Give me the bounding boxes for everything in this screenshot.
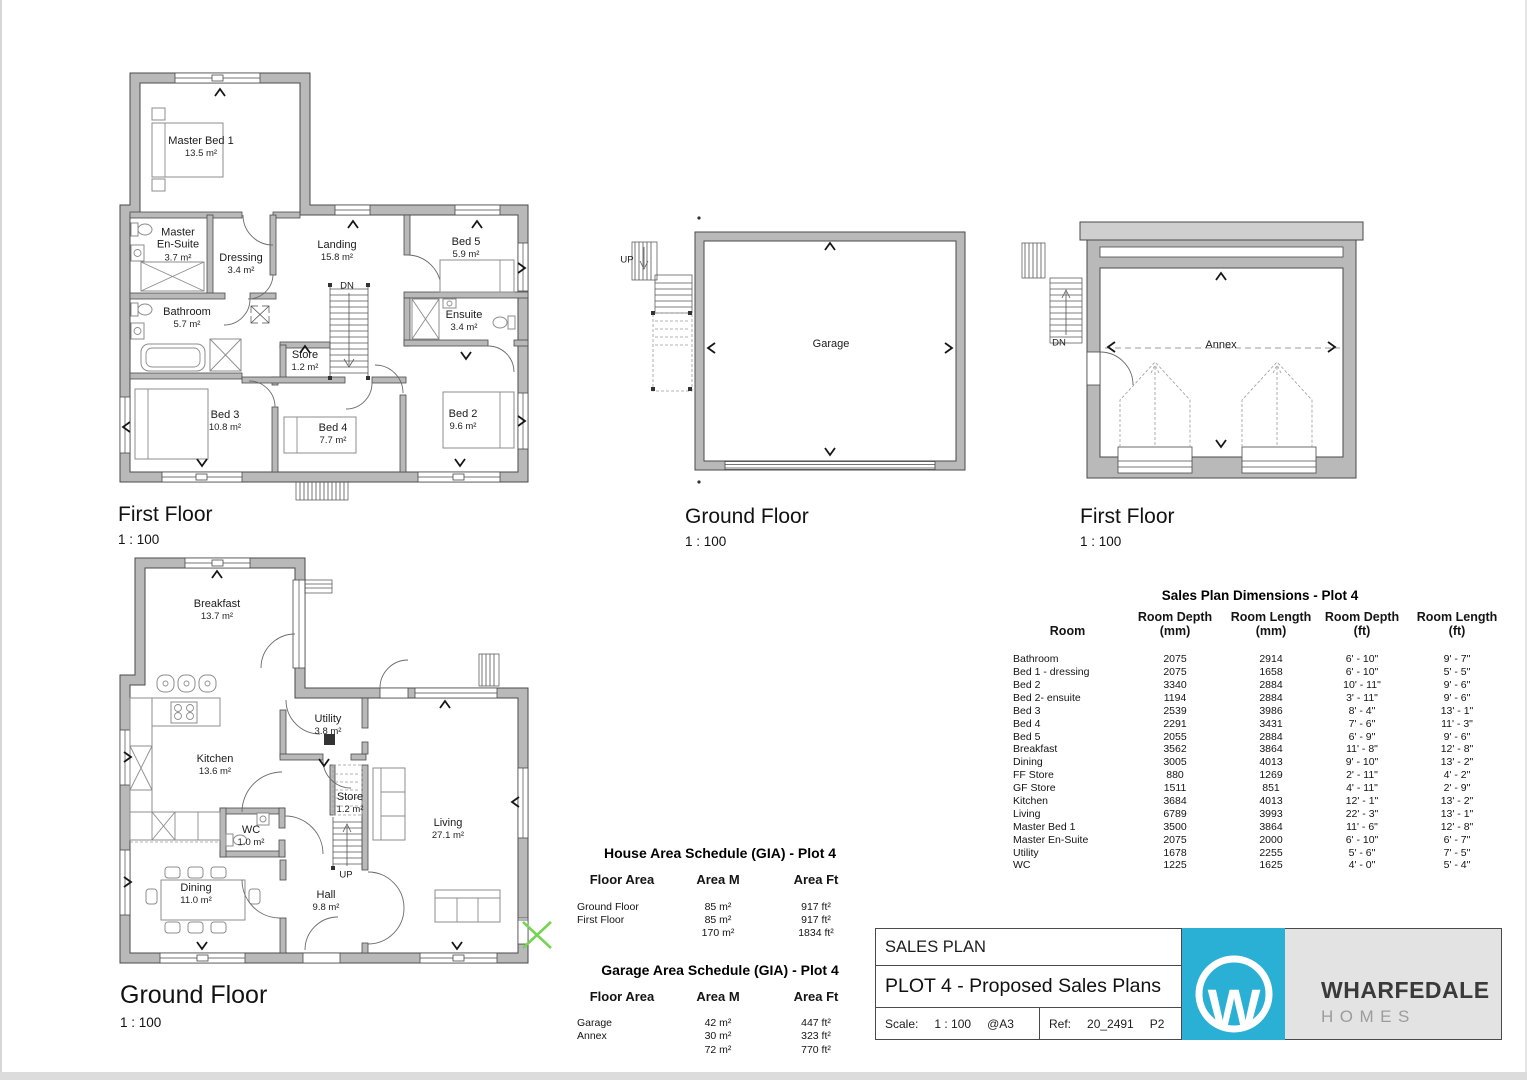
cell-length-ft: 13' - 1" xyxy=(1407,705,1507,717)
dimensions-table-header: Room Room Depth (mm) Room Length (mm) Ro… xyxy=(1010,610,1510,639)
house-ground-floor-title: Ground Floor 1 : 100 xyxy=(120,981,267,1030)
cell-length-mm: 1658 xyxy=(1225,666,1317,678)
revision: P2 xyxy=(1150,1017,1165,1031)
plan-scale: 1 : 100 xyxy=(685,534,809,549)
cell-depth-mm: 2075 xyxy=(1125,653,1225,665)
room-label-living: Living 27.1 m² xyxy=(432,817,464,841)
house-area-schedule-header: Floor Area Area M Area Ft xyxy=(555,872,885,887)
stair-label-dn: DN xyxy=(340,281,354,292)
cell-floor: First Floor xyxy=(555,914,689,926)
plan-title: First Floor xyxy=(118,503,213,527)
garage-walls xyxy=(695,232,965,470)
garage-door-opening xyxy=(725,462,935,470)
cell-depth-mm: 880 xyxy=(1125,769,1225,781)
cell-depth-mm: 2539 xyxy=(1125,705,1225,717)
cell-room: Bed 5 xyxy=(1010,731,1125,743)
garage-area-schedule-header: Floor Area Area M Area Ft xyxy=(555,989,885,1004)
header-depth-ft: Room Depth (ft) xyxy=(1317,610,1407,639)
room-label-dining: Dining 11.0 m² xyxy=(180,882,212,906)
dimensions-table-body: Bathroom 2075 2914 6' - 10" 9' - 7" Bed … xyxy=(1010,653,1510,872)
room-label-bed4: Bed 4 7.7 m² xyxy=(319,422,348,446)
annex-dormer-outlines xyxy=(1120,362,1312,447)
dimension-row: WC 1225 1625 4' - 0" 5' - 4" xyxy=(1010,859,1510,872)
brand-sub: HOMES xyxy=(1321,1008,1501,1025)
cell-area-ft: 1834 ft² xyxy=(747,927,885,939)
cell-length-mm: 3986 xyxy=(1225,705,1317,717)
area-row: Ground Floor 85 m² 917 ft² xyxy=(555,900,885,913)
header-floor-area: Floor Area xyxy=(555,872,689,887)
plan-scale: 1 : 100 xyxy=(120,1015,267,1030)
cell-area-m: 85 m² xyxy=(689,914,747,926)
cell-depth-mm: 1194 xyxy=(1125,692,1225,704)
annex-title: First Floor 1 : 100 xyxy=(1080,505,1175,549)
stair-label-up: UP xyxy=(620,255,633,266)
cell-length-ft: 13' - 2" xyxy=(1407,756,1507,768)
brand-name: WHARFEDALE xyxy=(1321,979,1501,1002)
cell-depth-ft: 5' - 6" xyxy=(1317,847,1407,859)
scale-value: 1 : 100 xyxy=(934,1017,971,1031)
cell-depth-ft: 6' - 10" xyxy=(1317,653,1407,665)
cell-floor: Garage xyxy=(555,1017,689,1029)
cell-length-mm: 1625 xyxy=(1225,859,1317,871)
cell-depth-ft: 8' - 4" xyxy=(1317,705,1407,717)
plan-scale: 1 : 100 xyxy=(1080,534,1175,549)
cell-room: WC xyxy=(1010,859,1125,871)
header-area-m: Area M xyxy=(689,989,747,1004)
room-label-ff-store: Store 1.2 m² xyxy=(292,349,319,373)
wharfedale-brand-box: WHARFEDALE HOMES xyxy=(1285,928,1502,1040)
furniture xyxy=(131,108,515,459)
cell-depth-mm: 6789 xyxy=(1125,808,1225,820)
ref-label: Ref: xyxy=(1049,1017,1071,1031)
drawing-title: PLOT 4 - Proposed Sales Plans xyxy=(876,966,1181,1008)
plan-title: Ground Floor xyxy=(120,981,267,1010)
header-length-ft: Room Length (ft) xyxy=(1407,610,1507,639)
cell-room: Master Bed 1 xyxy=(1010,821,1125,833)
cell-depth-ft: 11' - 8" xyxy=(1317,743,1407,755)
cell-depth-ft: 10' - 11" xyxy=(1317,679,1407,691)
drawing-sheet: Master Bed 1 13.5 m² Master En-Suite 3.7… xyxy=(0,0,1527,1080)
dimension-row: Utility 1678 2255 5' - 6" 7' - 5" xyxy=(1010,846,1510,859)
cell-length-ft: 12' - 8" xyxy=(1407,821,1507,833)
title-block-meta: Scale: 1 : 100 @A3 Ref: 20_2491 P2 xyxy=(876,1008,1181,1039)
cell-length-ft: 13' - 1" xyxy=(1407,808,1507,820)
dimension-row: Master Bed 1 3500 3864 11' - 6" 12' - 8" xyxy=(1010,820,1510,833)
cell-area-m: 170 m² xyxy=(689,927,747,939)
room-label-utility: Utility 3.8 m² xyxy=(315,713,342,737)
cell-length-mm: 4013 xyxy=(1225,795,1317,807)
cell-length-mm: 3993 xyxy=(1225,808,1317,820)
wharfedale-logo-icon: W xyxy=(1182,928,1285,1040)
room-label-master-bed-1: Master Bed 1 13.5 m² xyxy=(168,135,233,159)
cell-area-ft: 447 ft² xyxy=(747,1017,885,1029)
room-label-gf-store: Store 1.2 m² xyxy=(337,791,364,815)
cell-depth-mm: 3684 xyxy=(1125,795,1225,807)
cell-depth-ft: 6' - 10" xyxy=(1317,666,1407,678)
room-label-bed3: Bed 3 10.8 m² xyxy=(209,409,241,433)
cell-length-mm: 3864 xyxy=(1225,743,1317,755)
cell-length-ft: 2' - 9" xyxy=(1407,782,1507,794)
cell-length-ft: 9' - 7" xyxy=(1407,653,1507,665)
cell-area-ft: 770 ft² xyxy=(747,1044,885,1056)
garage-title: Ground Floor 1 : 100 xyxy=(685,505,809,549)
stairs-ground-floor xyxy=(331,817,362,870)
header-room: Room xyxy=(1010,624,1125,638)
header-area-ft: Area Ft xyxy=(747,872,885,887)
cell-room: GF Store xyxy=(1010,782,1125,794)
cell-area-ft: 917 ft² xyxy=(747,914,885,926)
direction-cross xyxy=(251,306,269,323)
cell-length-mm: 3431 xyxy=(1225,718,1317,730)
cell-length-ft: 4' - 2" xyxy=(1407,769,1507,781)
cell-depth-mm: 2291 xyxy=(1125,718,1225,730)
sheet-bottom-edge xyxy=(0,1072,1527,1080)
cell-length-mm: 2884 xyxy=(1225,679,1317,691)
cell-length-mm: 2884 xyxy=(1225,731,1317,743)
dimension-row: Breakfast 3562 3864 11' - 8" 12' - 8" xyxy=(1010,743,1510,756)
dimension-row: FF Store 880 1269 2' - 11" 4' - 2" xyxy=(1010,769,1510,782)
annex-door xyxy=(1087,352,1133,385)
cell-depth-mm: 1678 xyxy=(1125,847,1225,859)
cell-floor: Ground Floor xyxy=(555,901,689,913)
house-area-schedule-title: House Area Schedule (GIA) - Plot 4 xyxy=(555,845,885,861)
cell-depth-ft: 6' - 9" xyxy=(1317,731,1407,743)
cell-length-ft: 9' - 6" xyxy=(1407,692,1507,704)
cell-depth-ft: 7' - 6" xyxy=(1317,718,1407,730)
header-area-m: Area M xyxy=(689,872,747,887)
stairs-first-floor xyxy=(328,283,370,380)
cell-length-ft: 9' - 6" xyxy=(1407,731,1507,743)
house-first-floor-title: First Floor 1 : 100 xyxy=(118,503,213,547)
cell-length-mm: 3864 xyxy=(1225,821,1317,833)
dimension-row: Kitchen 3684 4013 12' - 1" 13' - 2" xyxy=(1010,795,1510,808)
cell-room: FF Store xyxy=(1010,769,1125,781)
cell-floor: Annex xyxy=(555,1030,689,1042)
scale-cell: Scale: 1 : 100 @A3 xyxy=(876,1008,1040,1039)
ref-value: 20_2491 xyxy=(1087,1017,1134,1031)
annex-roof-edge xyxy=(1080,222,1363,240)
cell-room: Bathroom xyxy=(1010,653,1125,665)
cell-depth-mm: 3340 xyxy=(1125,679,1225,691)
dimension-row: Master En-Suite 2075 2000 6' - 10" 6' - … xyxy=(1010,833,1510,846)
stair-label-up: UP xyxy=(339,870,352,881)
paper-size: @A3 xyxy=(987,1017,1014,1031)
house-first-floor-plan: Master Bed 1 13.5 m² Master En-Suite 3.7… xyxy=(110,55,560,515)
cell-depth-ft: 4' - 0" xyxy=(1317,859,1407,871)
cell-length-mm: 851 xyxy=(1225,782,1317,794)
dimension-row: Bed 3 2539 3986 8' - 4" 13' - 1" xyxy=(1010,704,1510,717)
room-label-kitchen: Kitchen 13.6 m² xyxy=(197,753,234,777)
area-schedules: House Area Schedule (GIA) - Plot 4 Floor… xyxy=(555,845,885,1056)
cell-length-mm: 2914 xyxy=(1225,653,1317,665)
cell-area-m: 30 m² xyxy=(689,1030,747,1042)
cell-room: Bed 2 xyxy=(1010,679,1125,691)
house-ground-floor-drawing xyxy=(105,550,565,980)
porch-steps xyxy=(296,482,348,500)
cell-depth-ft: 6' - 10" xyxy=(1317,834,1407,846)
title-block-text: SALES PLAN PLOT 4 - Proposed Sales Plans… xyxy=(875,928,1182,1040)
garage-drawing xyxy=(615,205,995,500)
area-row: First Floor 85 m² 917 ft² xyxy=(555,913,885,926)
cell-room: Bed 4 xyxy=(1010,718,1125,730)
cell-depth-ft: 22' - 3" xyxy=(1317,808,1407,820)
cell-length-ft: 6' - 7" xyxy=(1407,834,1507,846)
dimensions-table: Sales Plan Dimensions - Plot 4 Room Room… xyxy=(1010,588,1510,872)
room-label-bathroom: Bathroom 5.7 m² xyxy=(163,306,211,330)
dimension-row: Living 6789 3993 22' - 3" 13' - 1" xyxy=(1010,807,1510,820)
cell-depth-ft: 9' - 10" xyxy=(1317,756,1407,768)
external-steps xyxy=(305,580,499,686)
cell-length-mm: 2255 xyxy=(1225,847,1317,859)
cell-depth-mm: 1511 xyxy=(1125,782,1225,794)
cell-depth-mm: 2075 xyxy=(1125,666,1225,678)
dimension-row: GF Store 1511 851 4' - 11" 2' - 9" xyxy=(1010,782,1510,795)
cell-depth-mm: 2055 xyxy=(1125,731,1225,743)
plan-title: First Floor xyxy=(1080,505,1175,529)
header-depth-mm: Room Depth (mm) xyxy=(1125,610,1225,639)
cell-depth-ft: 11' - 6" xyxy=(1317,821,1407,833)
cell-length-mm: 2884 xyxy=(1225,692,1317,704)
dimension-row: Bed 2- ensuite 1194 2884 3' - 11" 9' - 6… xyxy=(1010,691,1510,704)
doc-type: SALES PLAN xyxy=(876,929,1181,966)
room-label-ensuite: Ensuite 3.4 m² xyxy=(446,309,483,333)
cell-room: Master En-Suite xyxy=(1010,834,1125,846)
cell-length-mm: 4013 xyxy=(1225,756,1317,768)
cell-length-ft: 5' - 5" xyxy=(1407,666,1507,678)
ref-cell: Ref: 20_2491 P2 xyxy=(1040,1008,1180,1039)
cell-area-m: 85 m² xyxy=(689,901,747,913)
cell-length-mm: 1269 xyxy=(1225,769,1317,781)
cell-depth-mm: 1225 xyxy=(1125,859,1225,871)
room-label-dressing: Dressing 3.4 m² xyxy=(219,252,262,276)
cell-depth-ft: 12' - 1" xyxy=(1317,795,1407,807)
plan-scale: 1 : 100 xyxy=(118,532,213,547)
cell-room: Utility xyxy=(1010,847,1125,859)
dimension-row: Bed 4 2291 3431 7' - 6" 11' - 3" xyxy=(1010,717,1510,730)
room-label-wc: WC 1.0 m² xyxy=(238,824,265,848)
cell-room: Breakfast xyxy=(1010,743,1125,755)
room-label-bed2: Bed 2 9.6 m² xyxy=(449,408,478,432)
green-cross-marker xyxy=(518,920,551,948)
logo-letter: W xyxy=(1208,977,1261,1040)
garage-external-stairs xyxy=(632,242,692,391)
header-floor-area: Floor Area xyxy=(555,989,689,1004)
cell-length-mm: 2000 xyxy=(1225,834,1317,846)
cell-depth-mm: 3562 xyxy=(1125,743,1225,755)
cell-length-ft: 13' - 2" xyxy=(1407,795,1507,807)
cell-length-ft: 12' - 8" xyxy=(1407,743,1507,755)
plan-title: Ground Floor xyxy=(685,505,809,529)
room-label-garage: Garage xyxy=(813,338,850,350)
header-area-ft: Area Ft xyxy=(747,989,885,1004)
house-ground-floor-plan: Breakfast 13.7 m² Kitchen 13.6 m² Utilit… xyxy=(105,550,565,980)
annex-first-floor-plan: Annex DN xyxy=(1005,195,1405,495)
annex-wall-cavity xyxy=(1100,247,1343,257)
annex-walls xyxy=(1087,240,1356,478)
cell-depth-mm: 2075 xyxy=(1125,834,1225,846)
stair-label-dn: DN xyxy=(1052,338,1066,349)
cell-depth-ft: 3' - 11" xyxy=(1317,692,1407,704)
cell-area-m: 72 m² xyxy=(689,1044,747,1056)
cell-length-ft: 9' - 6" xyxy=(1407,679,1507,691)
cell-area-ft: 917 ft² xyxy=(747,901,885,913)
house-area-schedule-body: Ground Floor 85 m² 917 ft² First Floor 8… xyxy=(555,900,885,940)
cell-length-ft: 7' - 5" xyxy=(1407,847,1507,859)
cell-length-ft: 5' - 4" xyxy=(1407,859,1507,871)
sheet-left-edge xyxy=(0,0,2,1080)
scale-label: Scale: xyxy=(885,1017,918,1031)
cell-area-ft: 323 ft² xyxy=(747,1030,885,1042)
living-furniture xyxy=(373,768,500,922)
area-row: Garage 42 m² 447 ft² xyxy=(555,1017,885,1030)
cell-room: Kitchen xyxy=(1010,795,1125,807)
area-row: 72 m² 770 ft² xyxy=(555,1043,885,1056)
cell-depth-ft: 2' - 11" xyxy=(1317,769,1407,781)
room-label-breakfast: Breakfast 13.7 m² xyxy=(194,598,240,622)
dimension-row: Bed 5 2055 2884 6' - 9" 9' - 6" xyxy=(1010,730,1510,743)
cell-room: Bed 3 xyxy=(1010,705,1125,717)
header-length-mm: Room Length (mm) xyxy=(1225,610,1317,639)
room-label-bed5: Bed 5 5.9 m² xyxy=(452,236,481,260)
room-label-hall: Hall 9.8 m² xyxy=(313,889,340,913)
room-label-landing: Landing 15.8 m² xyxy=(317,239,356,263)
dimension-row: Bed 2 3340 2884 10' - 11" 9' - 6" xyxy=(1010,679,1510,692)
dimension-row: Bed 1 - dressing 2075 1658 6' - 10" 5' -… xyxy=(1010,666,1510,679)
window-arrow-marks xyxy=(1108,273,1335,447)
title-block: SALES PLAN PLOT 4 - Proposed Sales Plans… xyxy=(875,928,1502,1040)
annex-external-stairs xyxy=(1022,243,1082,343)
garage-area-schedule-body: Garage 42 m² 447 ft² Annex 30 m² 323 ft²… xyxy=(555,1017,885,1057)
area-row: 170 m² 1834 ft² xyxy=(555,926,885,939)
cell-depth-mm: 3500 xyxy=(1125,821,1225,833)
cell-room: Living xyxy=(1010,808,1125,820)
room-label-master-ensuite: Master En-Suite 3.7 m² xyxy=(157,227,199,264)
room-label-annex: Annex xyxy=(1205,339,1236,351)
garage-ground-floor-plan: Garage UP xyxy=(615,205,995,500)
dimension-row: Dining 3005 4013 9' - 10" 13' - 2" xyxy=(1010,756,1510,769)
cell-room: Dining xyxy=(1010,756,1125,768)
dimensions-table-title: Sales Plan Dimensions - Plot 4 xyxy=(1010,588,1510,603)
dimension-row: Bathroom 2075 2914 6' - 10" 9' - 7" xyxy=(1010,653,1510,666)
cell-length-ft: 11' - 3" xyxy=(1407,718,1507,730)
cell-depth-ft: 4' - 11" xyxy=(1317,782,1407,794)
cell-depth-mm: 3005 xyxy=(1125,756,1225,768)
garage-area-schedule-title: Garage Area Schedule (GIA) - Plot 4 xyxy=(555,962,885,978)
area-row: Annex 30 m² 323 ft² xyxy=(555,1030,885,1043)
cell-area-m: 42 m² xyxy=(689,1017,747,1029)
cell-room: Bed 2- ensuite xyxy=(1010,692,1125,704)
cell-room: Bed 1 - dressing xyxy=(1010,666,1125,678)
